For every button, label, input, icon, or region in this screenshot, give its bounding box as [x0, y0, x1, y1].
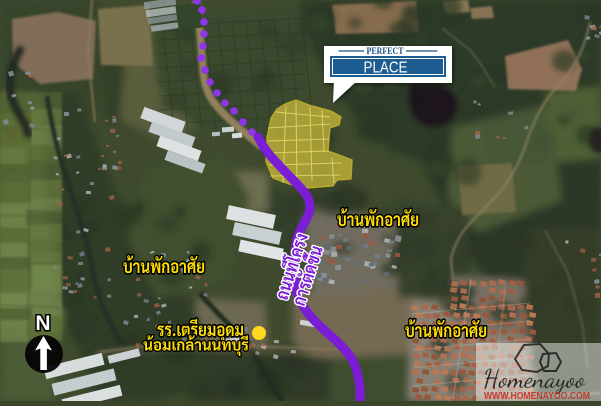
svg-text:PERFECT: PERFECT: [367, 46, 404, 56]
svg-text:N: N: [35, 312, 50, 335]
svg-text:PLACE: PLACE: [364, 59, 408, 76]
svg-text:WWW.HOMENAYOO.COM: WWW.HOMENAYOO.COM: [484, 390, 590, 401]
